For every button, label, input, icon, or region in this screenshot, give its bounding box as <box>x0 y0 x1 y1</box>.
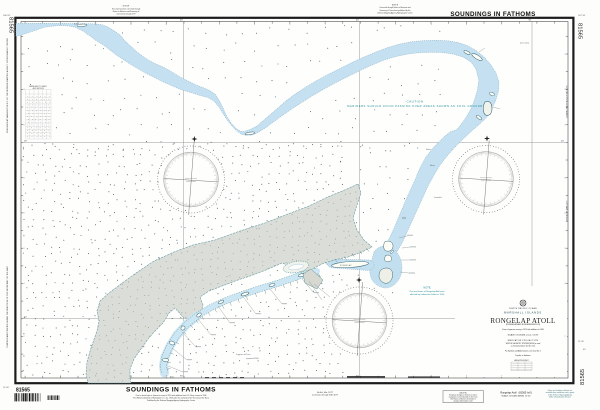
svg-text:3: 3 <box>431 24 432 26</box>
svg-text:0: 0 <box>24 213 25 215</box>
svg-text:4: 4 <box>24 283 25 285</box>
svg-text:1: 1 <box>395 24 396 26</box>
svg-text:2: 2 <box>565 248 566 250</box>
svg-text:RONGELAP: RONGELAP <box>340 264 352 267</box>
svg-text:MARSHALL ISLANDS: MARSHALL ISLANDS <box>504 311 542 315</box>
svg-text:1: 1 <box>24 54 25 56</box>
svg-text:3: 3 <box>254 375 255 377</box>
svg-text:Office of Distribution Service: Office of Distribution Services <box>549 396 571 399</box>
svg-text:1: 1 <box>395 375 396 377</box>
svg-text:5: 5 <box>289 24 290 26</box>
svg-text:81565: 81565 <box>577 23 583 39</box>
svg-text:Ebon: Ebon <box>430 165 436 167</box>
svg-text:SOUNDINGS IN FATHOMS: SOUNDINGS IN FATHOMS <box>126 387 216 394</box>
svg-text:reported 1946: reported 1946 <box>246 357 259 360</box>
svg-text:NOTICE: NOTICE <box>123 6 130 8</box>
svg-text:5: 5 <box>466 24 467 26</box>
svg-text:SCALE 1:153,680 (WGS) 11°20': SCALE 1:153,680 (WGS) 11°20' <box>501 394 531 397</box>
svg-text:From a Japanese survey in 1915: From a Japanese survey in 1915 with addi… <box>502 328 543 331</box>
svg-text:4: 4 <box>95 375 96 377</box>
svg-text:4th Ed., Mar. 12/77: 4th Ed., Mar. 12/77 <box>317 391 333 394</box>
svg-text:7: 7 <box>325 24 326 26</box>
svg-text:Defense Mapping Agency Hydrogr: Defense Mapping Agency Hydrographic Cent… <box>377 12 413 15</box>
svg-text:SCALE 1:153,680 at Lat. 11°20': SCALE 1:153,680 at Lat. 11°20' <box>508 334 539 337</box>
svg-text:3: 3 <box>24 89 25 91</box>
svg-text:Corrections through N.M. 11/77: Corrections through N.M. 11/77 <box>312 394 338 397</box>
svg-text:as horizontal datum for this c: as horizontal datum for this chart <box>511 345 536 348</box>
svg-text:5: 5 <box>24 124 25 126</box>
svg-text:11°05': 11°05' <box>578 341 585 343</box>
svg-text:(RONGELAP AND RONGERIK ATOLLS): (RONGELAP AND RONGERIK ATOLLS) <box>506 323 541 326</box>
svg-text:NOTE B: NOTE B <box>392 5 399 7</box>
svg-text:Depths in fathoms: Depths in fathoms <box>515 354 530 357</box>
svg-text:11°00': 11°00' <box>3 387 10 389</box>
svg-text:EDITION OF MAR 1977: EDITION OF MAR 1977 <box>566 200 569 222</box>
svg-text:3: 3 <box>565 89 566 91</box>
svg-text:81565: 81565 <box>16 388 30 394</box>
svg-text:7: 7 <box>24 336 25 338</box>
svg-text:Lomuilal: Lomuilal <box>434 197 442 199</box>
svg-text:(see note): (see note) <box>520 42 529 45</box>
svg-text:NOTE: NOTE <box>423 286 430 290</box>
svg-text:81565: 81565 <box>580 369 586 385</box>
svg-text:SOUNDINGS IN FATHOMS: SOUNDINGS IN FATHOMS <box>450 11 535 18</box>
svg-text:2: 2 <box>24 248 25 250</box>
svg-text:5: 5 <box>466 375 467 377</box>
svg-text:0: 0 <box>565 213 566 215</box>
svg-text:Corrected through Notice to Ma: Corrected through Notice to Mariners and <box>379 6 410 9</box>
svg-text:8: 8 <box>166 375 167 377</box>
svg-text:Boke: Boke <box>74 23 78 25</box>
svg-text:affected by radioactive fallou: affected by radioactive fallout in 1954 <box>410 293 445 296</box>
svg-text:2: 2 <box>60 24 61 26</box>
svg-text:CORRECTED THROUGH NM 26/76: CORRECTED THROUGH NM 26/76 <box>567 85 569 118</box>
svg-text:COMPILED AND PRINTED UNDER THE: COMPILED AND PRINTED UNDER THE DIRECTION… <box>6 265 9 348</box>
svg-text:Arbar: Arbar <box>170 376 175 379</box>
svg-text:7: 7 <box>501 375 502 377</box>
svg-text:MERCATOR PROJECTION: MERCATOR PROJECTION <box>508 339 539 342</box>
svg-text:NORTH PACIFIC OCEAN: NORTH PACIFIC OCEAN <box>509 307 537 310</box>
svg-text:1: 1 <box>219 24 220 26</box>
svg-text:The land areas of Rongelap Ato: The land areas of Rongelap Atoll were <box>409 290 445 293</box>
svg-text:Rongelap Atoll (81565 Int'l): Rongelap Atoll (81565 Int'l) <box>500 391 531 394</box>
svg-text:5: 5 <box>565 124 566 126</box>
svg-text:Summary of Corrections publish: Summary of Corrections published by the <box>380 9 411 12</box>
svg-text:81565: 81565 <box>8 17 14 33</box>
svg-text:6: 6 <box>131 24 132 26</box>
svg-text:First Edition published at Was: First Edition published at Washington D.… <box>133 397 209 400</box>
svg-text:Lagoon of Line: Lagoon of Line <box>236 354 251 356</box>
svg-text:1: 1 <box>565 54 566 56</box>
svg-text:CAUTION: CAUTION <box>407 99 424 103</box>
svg-text:Corrections through 1977: Corrections through 1977 <box>116 12 135 15</box>
svg-text:7: 7 <box>501 24 502 26</box>
svg-text:167°10': 167°10' <box>578 15 586 17</box>
svg-text:4: 4 <box>95 24 96 26</box>
svg-text:8: 8 <box>166 24 167 26</box>
svg-text:HEIGHTS IN FEET: HEIGHTS IN FEET <box>514 360 528 362</box>
svg-text:7: 7 <box>565 336 566 338</box>
svg-text:MARINERS SHOULD AVOID PASSING: MARINERS SHOULD AVOID PASSING OVER AREAS… <box>347 104 483 108</box>
svg-text:4: 4 <box>565 283 566 285</box>
svg-text:7: 7 <box>325 375 326 377</box>
svg-text:5: 5 <box>289 375 290 377</box>
svg-text:Chart is based upon a Japanese: Chart is based upon a Japanese survey of… <box>136 394 207 397</box>
svg-text:Naen: Naen <box>426 149 432 151</box>
svg-text:For Symbols and Abbreviations,: For Symbols and Abbreviations, see Chart… <box>505 349 541 352</box>
svg-text:8: 8 <box>24 177 25 179</box>
svg-text:6: 6 <box>131 375 132 377</box>
svg-text:WORLD GEODETIC SYSTEM (WGS) is: WORLD GEODETIC SYSTEM (WGS) is used <box>506 343 540 345</box>
svg-text:3: 3 <box>254 24 255 26</box>
svg-text:2: 2 <box>60 375 61 377</box>
svg-text:AND METERS: AND METERS <box>33 87 45 90</box>
svg-text:166°20': 166°20' <box>3 15 11 17</box>
svg-text:8: 8 <box>565 177 566 179</box>
svg-text:Published by the Defense Mappi: Published by the Defense Mapping Agency … <box>147 399 196 402</box>
svg-text:PUBLISHED AT WASHINGTON D.C. B: PUBLISHED AT WASHINGTON D.C. BY THE DEFE… <box>6 38 9 134</box>
